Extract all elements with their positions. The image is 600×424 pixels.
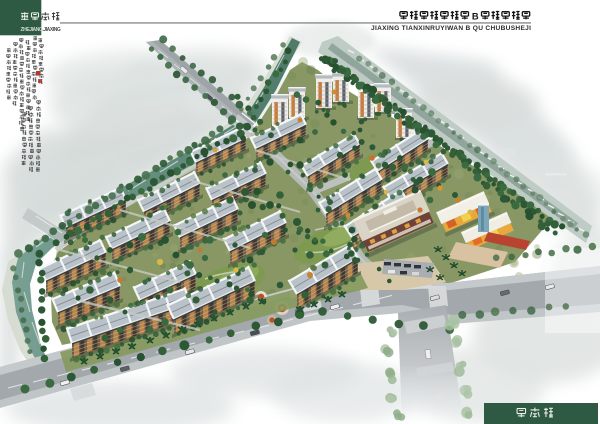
- svg-text:JIAXING TIANXINRUYIWAN B QU CH: JIAXING TIANXINRUYIWAN B QU CHUBUSHEJI: [371, 25, 531, 32]
- svg-text:B: B: [472, 10, 479, 21]
- svg-text:ZHEJIANG.JIAXING: ZHEJIANG.JIAXING: [21, 27, 62, 33]
